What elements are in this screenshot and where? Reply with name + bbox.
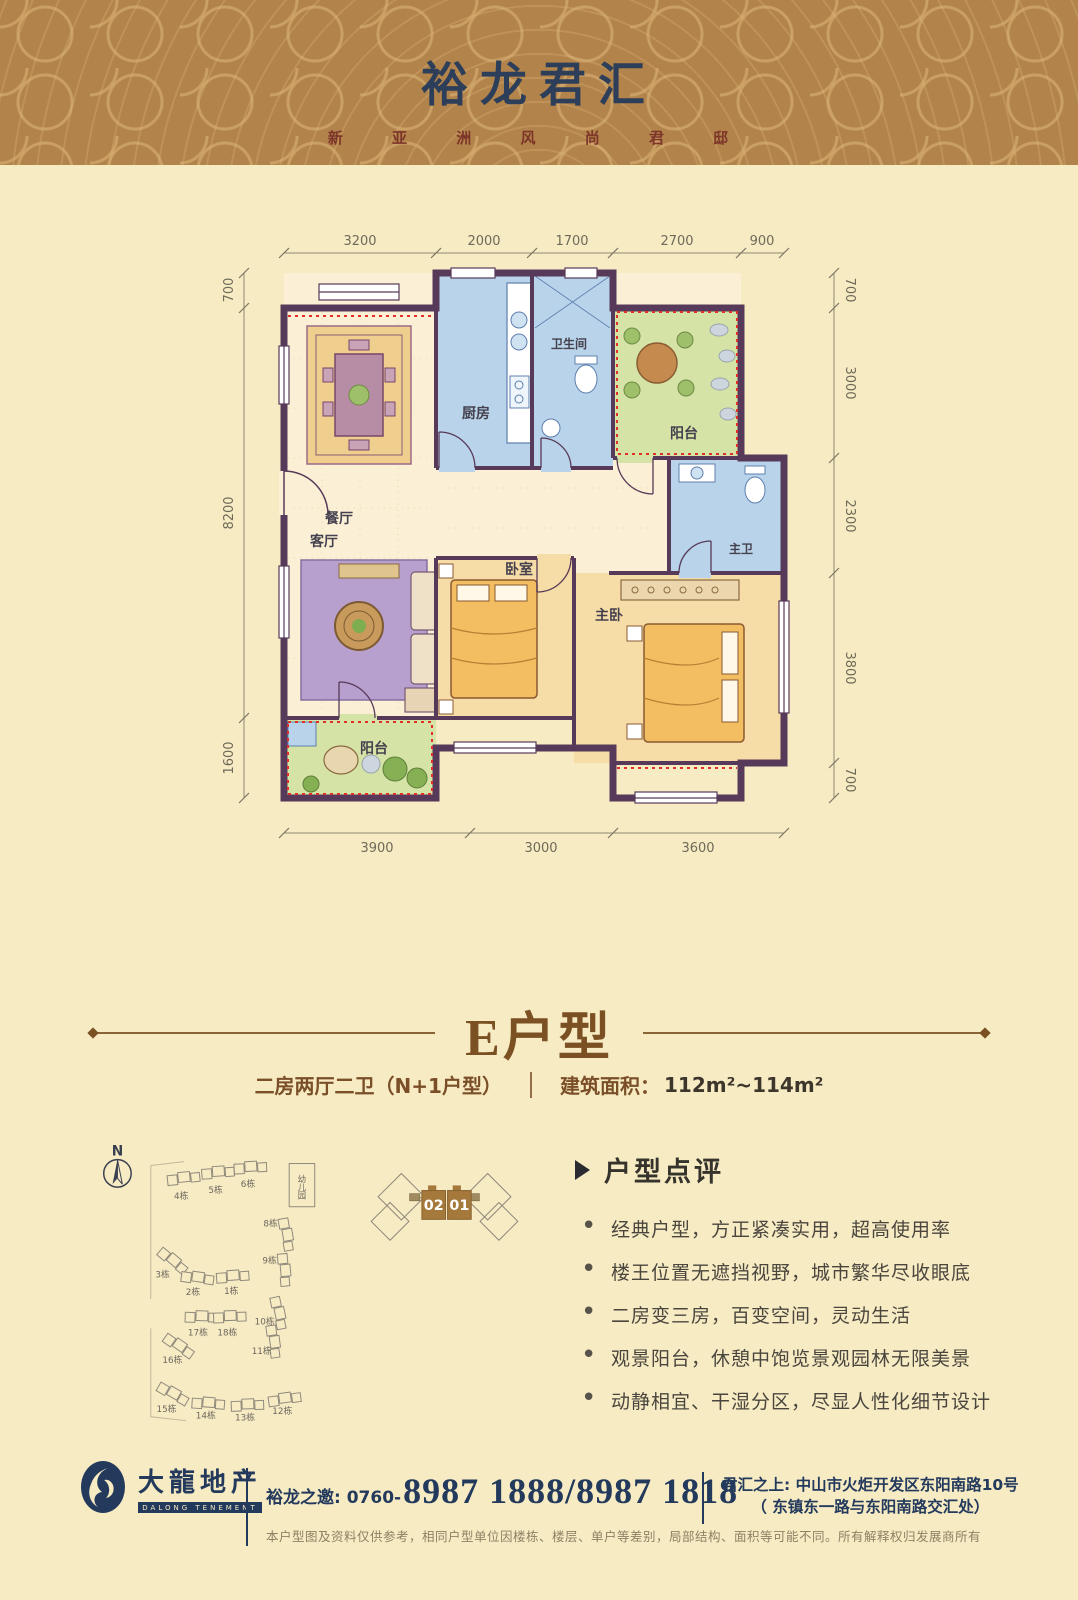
site-plan: N 4 bbox=[88, 1122, 353, 1422]
address-line2: （ 东镇东一路与东阳南路交汇处） bbox=[722, 1496, 1019, 1518]
room-label-balcony-bottom: 阳台 bbox=[360, 740, 388, 757]
header-banner: 裕龙君汇 新 亚 洲 风 尚 君 邸 bbox=[0, 0, 1078, 165]
area-label: 建筑面积： bbox=[560, 1070, 660, 1099]
review-list: 经典户型，方正紧凑实用，超高使用率 楼王位置无遮挡视野，城市繁华尽收眼底 二房变… bbox=[575, 1215, 1005, 1414]
developer-name: 大龍地产 bbox=[138, 1462, 262, 1499]
building-label: 14栋 bbox=[196, 1410, 216, 1422]
building-label: 4栋 bbox=[174, 1190, 189, 1202]
review-bullet: 经典户型，方正紧凑实用，超高使用率 bbox=[575, 1215, 1005, 1242]
unit-title: E户型 bbox=[465, 995, 613, 1070]
room-label-dining: 餐厅 bbox=[324, 510, 353, 527]
dining-table-icon bbox=[307, 326, 411, 464]
locator-unit-01-label: 01 bbox=[449, 1198, 469, 1214]
locator-notch bbox=[453, 1185, 461, 1190]
project-title: 裕龙君汇 bbox=[0, 0, 1078, 115]
building-label: 18栋 bbox=[217, 1326, 237, 1338]
footer-divider-right bbox=[702, 1472, 704, 1524]
dim-top-2: 1700 bbox=[555, 234, 588, 249]
review-bullet: 观景阳台，休憩中饱览景观园林无限美景 bbox=[575, 1344, 1005, 1371]
footer: 大龍地产 DALONG TENEMENT 裕龙之邀: 0760- 8987 18… bbox=[0, 1440, 1078, 1600]
dim-bottom-0: 3900 bbox=[360, 841, 393, 856]
building-label: 1栋 bbox=[224, 1285, 239, 1297]
building-label: 12栋 bbox=[272, 1405, 292, 1417]
floor-plan-block: 3200 2000 1700 2700 900 700 8200 1600 70… bbox=[189, 228, 889, 882]
bedroom-bed-icon bbox=[439, 564, 537, 714]
locator-unit-02-label: 02 bbox=[424, 1198, 444, 1214]
pointer-icon bbox=[575, 1160, 590, 1180]
phone-label: 裕龙之邀: 0760- bbox=[266, 1483, 401, 1508]
unit-spec-row: 二房两厅二卫（N+1户型） 建筑面积： 112m²~114m² bbox=[0, 1070, 1078, 1099]
unit-title-row: E户型 bbox=[89, 995, 989, 1070]
dim-top-1: 2000 bbox=[467, 234, 500, 249]
building-label: 16栋 bbox=[162, 1354, 182, 1366]
dim-right-1: 3000 bbox=[842, 366, 857, 399]
dim-right-2: 2300 bbox=[842, 499, 857, 532]
dim-top-3: 2700 bbox=[660, 234, 693, 249]
building-label: 10栋 bbox=[255, 1316, 275, 1328]
unit-spec: 二房两厅二卫（N+1户型） bbox=[255, 1070, 502, 1099]
address-line1: 君汇之上: 中山市火炬开发区东阳南路10号 bbox=[722, 1474, 1019, 1496]
site-plan-block: N 4 bbox=[88, 1122, 353, 1426]
room-label-living: 客厅 bbox=[309, 533, 338, 550]
building-label: 2栋 bbox=[186, 1286, 201, 1298]
dim-left-0: 700 bbox=[222, 278, 237, 303]
dalong-logo-icon bbox=[80, 1460, 126, 1514]
disclaimer: 本户型图及资料仅供参考，相同户型单位因楼栋、楼层、单户等差别，局部结构、面积等可… bbox=[266, 1526, 1046, 1545]
rule-diamond-right bbox=[979, 1027, 990, 1038]
dim-left-2: 1600 bbox=[222, 741, 237, 774]
review-bullet: 楼王位置无遮挡视野，城市繁华尽收眼底 bbox=[575, 1258, 1005, 1285]
building-label: 17栋 bbox=[188, 1326, 208, 1338]
dim-right-3: 3800 bbox=[842, 651, 857, 684]
dim-bottom-2: 3600 bbox=[681, 841, 714, 856]
floor-plan: 3200 2000 1700 2700 900 700 8200 1600 70… bbox=[189, 228, 889, 878]
living-room-icon bbox=[301, 560, 437, 712]
svg-text:N: N bbox=[112, 1144, 124, 1160]
phone-numbers: 8987 1888/8987 1818 bbox=[403, 1470, 738, 1512]
building-label: 11栋 bbox=[252, 1345, 272, 1357]
room-label-master-bath: 主卫 bbox=[729, 541, 753, 556]
developer-name-en: DALONG TENEMENT bbox=[138, 1502, 262, 1513]
building-label: 3栋 bbox=[155, 1268, 170, 1280]
building-label: 6栋 bbox=[241, 1178, 256, 1190]
project-slogan: 新 亚 洲 风 尚 君 邸 bbox=[0, 127, 1078, 148]
building-label: 5栋 bbox=[208, 1184, 223, 1196]
building-label: 15栋 bbox=[156, 1403, 176, 1415]
room-label-bath: 卫生间 bbox=[551, 336, 587, 351]
building-label: 9栋 bbox=[262, 1255, 277, 1267]
kitchen-counter-icon bbox=[507, 283, 532, 443]
poster-page: 裕龙君汇 新 亚 洲 风 尚 君 邸 3200 2000 1700 2700 9… bbox=[0, 0, 1078, 1600]
unit-locator: 02 01 bbox=[352, 1132, 537, 1245]
room-label-balcony-top: 阳台 bbox=[670, 425, 698, 442]
rule-right bbox=[643, 1032, 981, 1034]
dim-top-0: 3200 bbox=[343, 234, 376, 249]
unit-locator-block: 02 01 bbox=[352, 1132, 537, 1249]
locator-notch bbox=[428, 1185, 436, 1190]
rule-diamond-left bbox=[87, 1027, 98, 1038]
north-compass-icon: N bbox=[104, 1144, 131, 1187]
building-label: 13栋 bbox=[235, 1412, 255, 1422]
developer-logo: 大龍地产 DALONG TENEMENT bbox=[80, 1460, 262, 1514]
footer-divider-left bbox=[246, 1468, 248, 1546]
address-block: 君汇之上: 中山市火炬开发区东阳南路10号 （ 东镇东一路与东阳南路交汇处） bbox=[722, 1474, 1019, 1519]
room-label-kitchen: 厨房 bbox=[462, 405, 490, 422]
review-section: 户型点评 经典户型，方正紧凑实用，超高使用率 楼王位置无遮挡视野，城市繁华尽收眼… bbox=[575, 1150, 1005, 1430]
dim-top-4: 900 bbox=[750, 234, 775, 249]
dim-bottom-1: 3000 bbox=[524, 841, 557, 856]
review-title: 户型点评 bbox=[604, 1150, 724, 1189]
site-building-labels: 4栋 5栋 6栋 幼儿园 8栋 3栋 2栋 1栋 9栋 17栋 18栋 10栋 … bbox=[155, 1174, 307, 1422]
developer-name-block: 大龍地产 DALONG TENEMENT bbox=[138, 1462, 262, 1513]
room-label-master-bedroom: 主卧 bbox=[595, 607, 623, 624]
review-header: 户型点评 bbox=[575, 1150, 1005, 1189]
dim-right-0: 700 bbox=[842, 278, 857, 303]
phone-block: 裕龙之邀: 0760- 8987 1888/8987 1818 bbox=[266, 1470, 738, 1512]
review-bullet: 动静相宜、干湿分区，尽显人性化细节设计 bbox=[575, 1387, 1005, 1414]
spec-divider bbox=[530, 1072, 532, 1098]
review-bullet: 二房变三房，百变空间，灵动生活 bbox=[575, 1301, 1005, 1328]
rule-left bbox=[97, 1032, 435, 1034]
dim-right-4: 700 bbox=[842, 768, 857, 793]
dim-left-1: 8200 bbox=[222, 496, 237, 529]
kindergarten-label: 幼儿园 bbox=[297, 1174, 307, 1201]
building-label: 8栋 bbox=[263, 1217, 278, 1229]
room-label-bedroom: 卧室 bbox=[505, 561, 533, 578]
area-value: 112m²~114m² bbox=[664, 1073, 823, 1097]
